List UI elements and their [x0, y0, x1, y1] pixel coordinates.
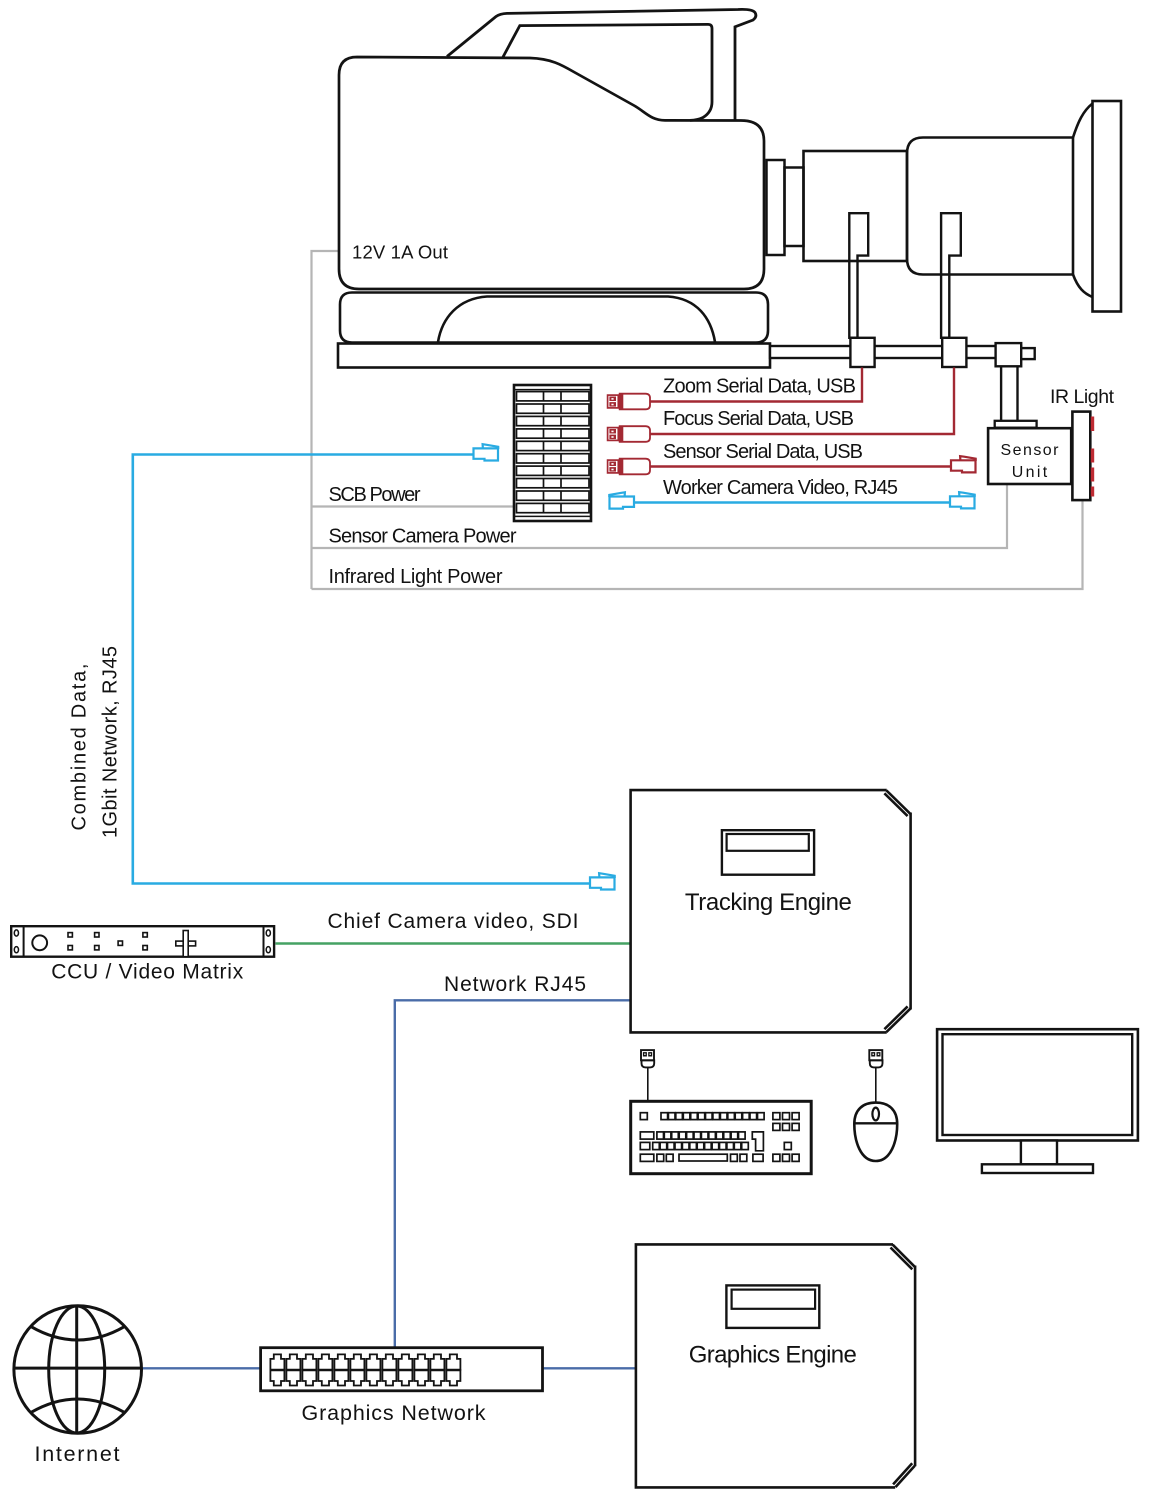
- svg-text:Sensor Serial Data, USB: Sensor Serial Data, USB: [663, 441, 863, 463]
- svg-text:Combined Data,: Combined Data,: [69, 664, 91, 831]
- svg-text:Tracking Engine: Tracking Engine: [685, 889, 852, 916]
- svg-text:12V 1A Out: 12V 1A Out: [352, 242, 448, 263]
- svg-text:CCU / Video Matrix: CCU / Video Matrix: [51, 961, 244, 984]
- svg-text:Worker Camera Video, RJ45: Worker Camera Video, RJ45: [663, 477, 898, 499]
- svg-text:Graphics Network: Graphics Network: [302, 1401, 486, 1425]
- svg-text:Unit: Unit: [1012, 464, 1048, 481]
- svg-text:IR Light: IR Light: [1050, 386, 1115, 408]
- svg-text:Network RJ45: Network RJ45: [444, 973, 586, 996]
- svg-text:Infrared Light Power: Infrared Light Power: [329, 566, 503, 588]
- svg-text:Graphics Engine: Graphics Engine: [689, 1342, 857, 1369]
- svg-text:Chief Camera video, SDI: Chief Camera video, SDI: [328, 910, 579, 933]
- svg-text:1Gbit Network, RJ45: 1Gbit Network, RJ45: [99, 646, 121, 838]
- svg-text:Sensor Camera Power: Sensor Camera Power: [329, 526, 517, 548]
- svg-text:Focus Serial Data, USB: Focus Serial Data, USB: [663, 408, 854, 430]
- svg-text:SCB Power: SCB Power: [329, 484, 421, 506]
- svg-text:Sensor: Sensor: [1001, 442, 1060, 459]
- svg-text:Internet: Internet: [35, 1442, 120, 1466]
- svg-text:Zoom Serial Data, USB: Zoom Serial Data, USB: [663, 376, 856, 398]
